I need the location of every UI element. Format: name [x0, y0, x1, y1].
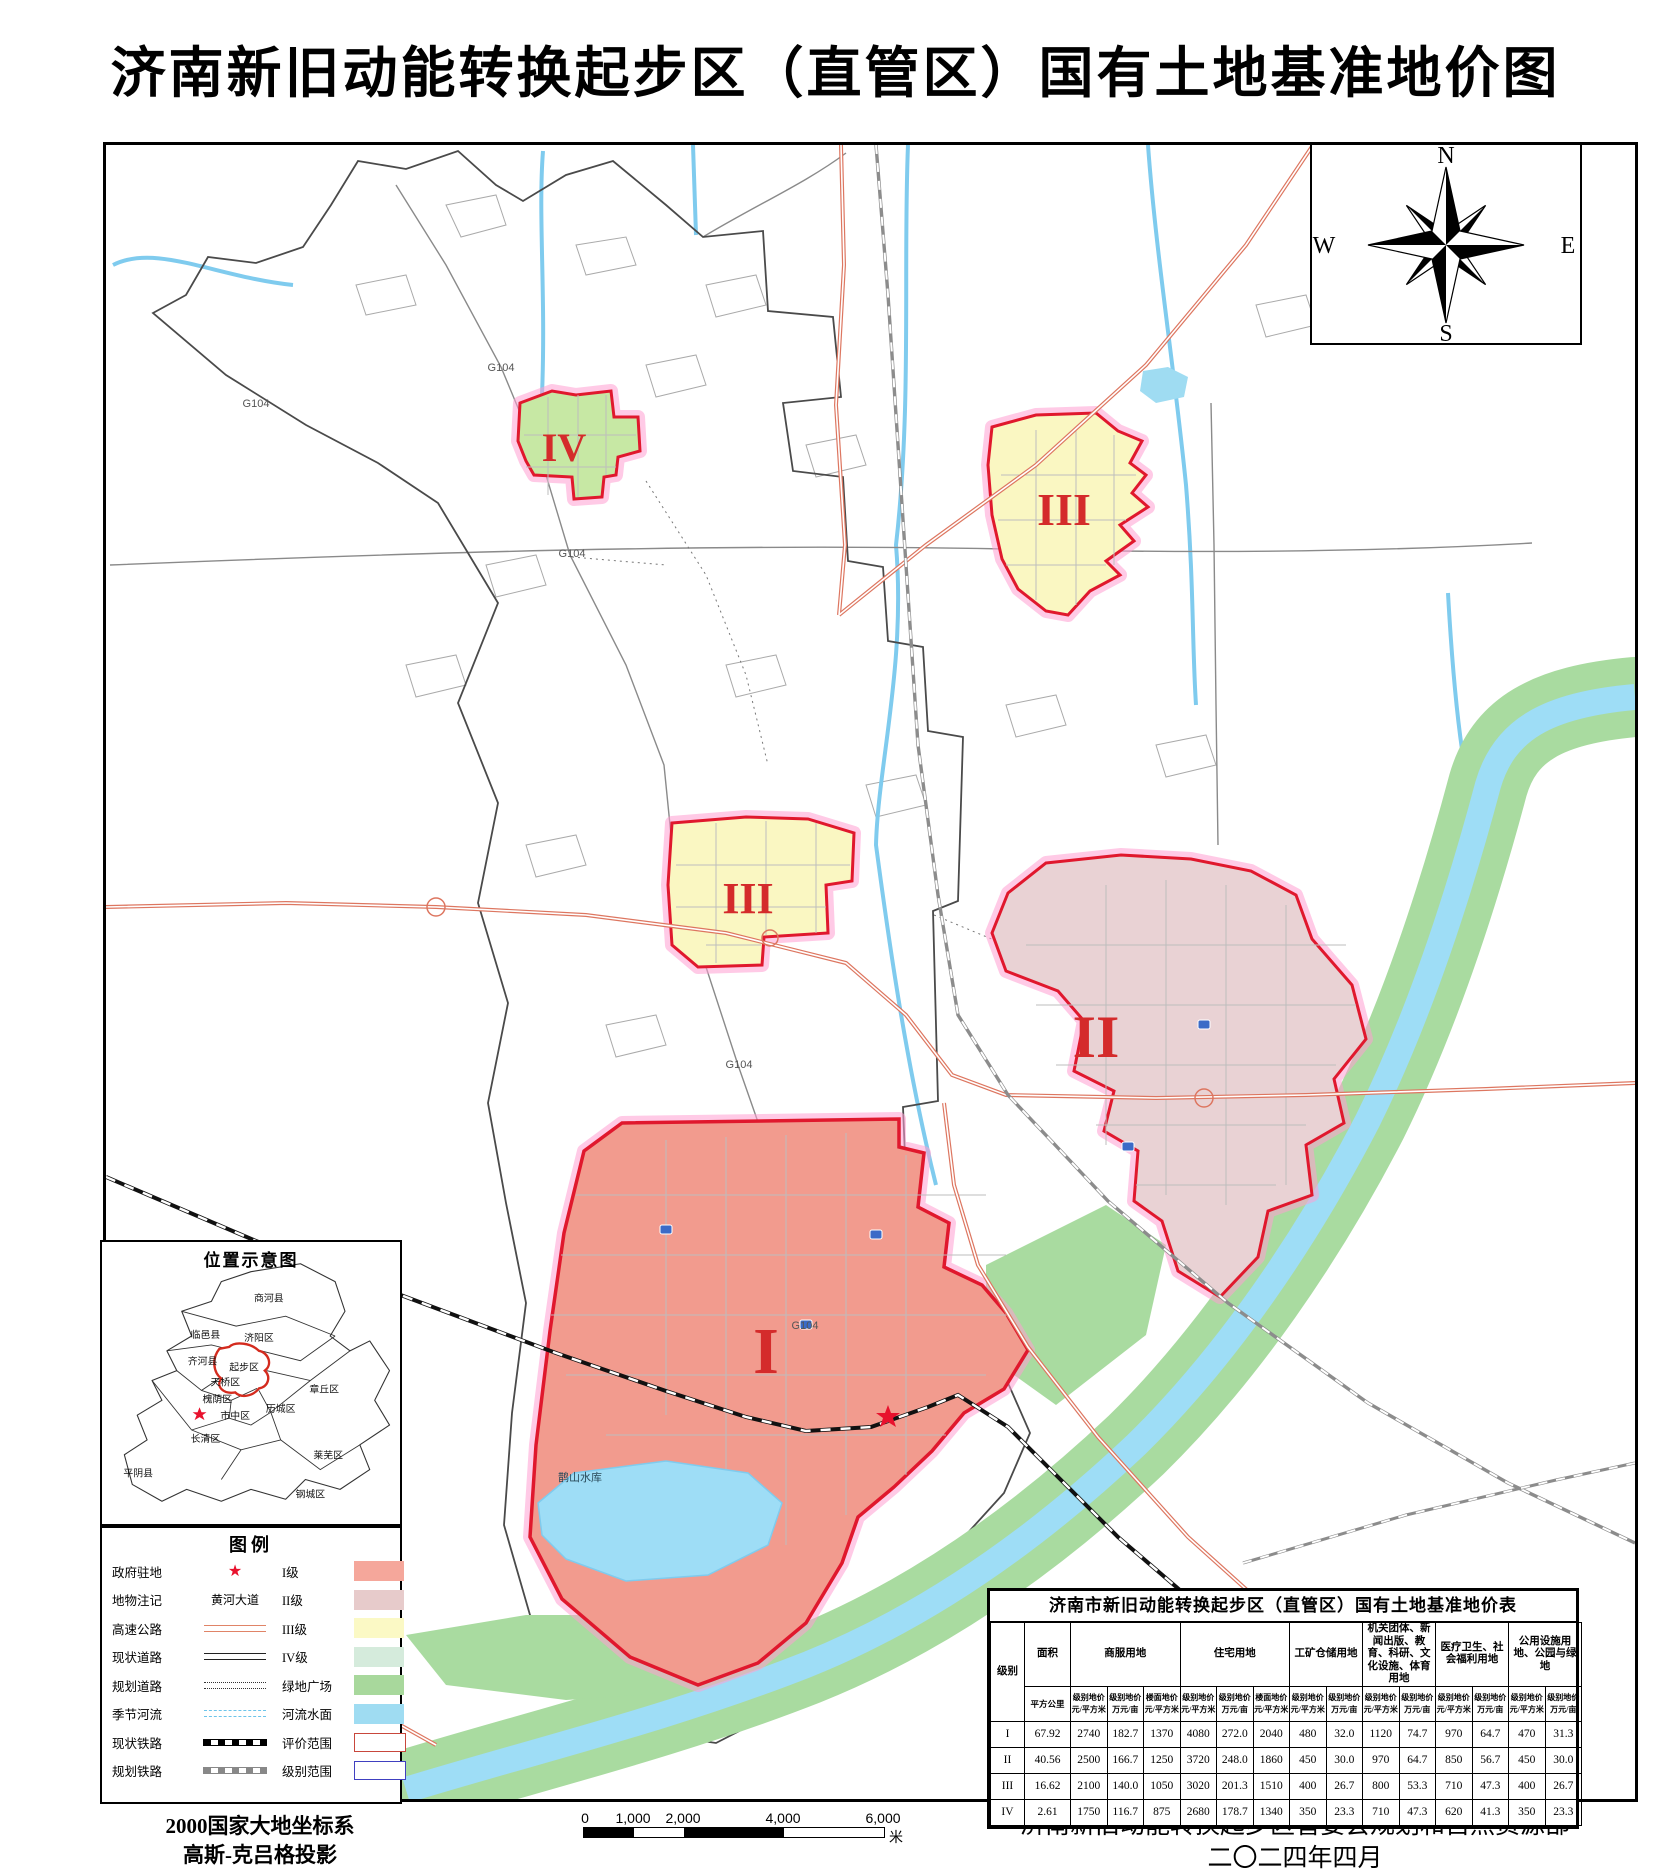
table-cell-grade: II [991, 1747, 1025, 1773]
inset-svg: 商河县临邑县济阳区齐河县起步区天桥区章丘区槐荫区历城区市中区长清区莱芜区平阴县钢… [102, 1242, 400, 1524]
legend-right-label: IV级 [282, 1647, 354, 1666]
legend-right-label: 绿地广场 [282, 1676, 354, 1695]
table-cell: 26.7 [1545, 1773, 1582, 1799]
table-cell: 470 [1509, 1721, 1546, 1747]
table-cell: 23.3 [1545, 1799, 1582, 1825]
legend-row: 季节河流河流水面 [102, 1700, 400, 1729]
inset-district-label: 济阳区 [244, 1331, 274, 1344]
table-cell: 32.0 [1326, 1721, 1363, 1747]
legend-swatch [354, 1647, 404, 1667]
price-table-title: 济南市新旧动能转换起步区（直管区）国有土地基准地价表 [990, 1591, 1576, 1622]
table-header-area: 面积 [1025, 1623, 1071, 1687]
scale-bar-segments [583, 1827, 885, 1838]
table-header-group: 公用设施用地、公园与绿地 [1509, 1623, 1582, 1687]
table-cell: 56.7 [1472, 1747, 1509, 1773]
table-cell: 116.7 [1107, 1799, 1144, 1825]
table-header-group: 住宅用地 [1180, 1623, 1290, 1687]
table-cell: 970 [1363, 1747, 1400, 1773]
table-header-group: 商服用地 [1071, 1623, 1181, 1687]
table-cell: 350 [1290, 1799, 1327, 1825]
legend-row: 现状道路IV级 [102, 1643, 400, 1672]
scale-unit-label: 米 [889, 1827, 903, 1847]
road-label: G104 [488, 362, 515, 374]
table-cell: 64.7 [1472, 1721, 1509, 1747]
table-cell: 970 [1436, 1721, 1473, 1747]
table-cell: 182.7 [1107, 1721, 1144, 1747]
table-cell: 2040 [1253, 1721, 1290, 1747]
legend-left-label: 规划铁路 [112, 1761, 188, 1780]
table-cell-grade: III [991, 1773, 1025, 1799]
legend-row: 规划道路绿地广场 [102, 1671, 400, 1700]
legend-row: 地物注记黄河大道II级 [102, 1586, 400, 1615]
inset-district-label: 长清区 [191, 1432, 221, 1445]
inset-district-label: 天桥区 [210, 1376, 240, 1388]
table-subheader: 平方公里 [1025, 1686, 1071, 1721]
table-cell: 31.3 [1545, 1721, 1582, 1747]
legend-left-label: 现状道路 [112, 1647, 188, 1666]
table-cell: 1050 [1144, 1773, 1181, 1799]
scale-tick-2000: 2,000 [665, 1810, 700, 1826]
table-cell: 30.0 [1326, 1747, 1363, 1773]
zone-label-II: II [1073, 1004, 1120, 1070]
table-row: II40.562500166.712503720248.0186045030.0… [991, 1747, 1582, 1773]
legend-left-label: 季节河流 [112, 1704, 188, 1723]
table-subheader: 级别地价万元/亩 [1545, 1686, 1582, 1721]
legend-row: 规划铁路级别范围 [102, 1757, 400, 1786]
inset-district-label: 章丘区 [309, 1382, 339, 1395]
table-cell: 248.0 [1217, 1747, 1254, 1773]
page-title: 济南新旧动能转换起步区（直管区）国有土地基准地价图 [0, 28, 1671, 108]
table-row: I67.922740182.713704080272.0204048032.01… [991, 1721, 1582, 1747]
table-subheader: 级别地价元/平方米 [1071, 1686, 1108, 1721]
legend-row: 高速公路III级 [102, 1614, 400, 1643]
footer-right-line2: 二〇二四年四月 [980, 1843, 1610, 1876]
table-cell: 2740 [1071, 1721, 1108, 1747]
inset-title: 位置示意图 [102, 1246, 400, 1271]
table-cell: 2.61 [1025, 1799, 1071, 1825]
inset-district-label: 市中区 [220, 1409, 250, 1422]
compass-rose-icon: N S W E [1312, 145, 1580, 343]
table-cell: 4080 [1180, 1721, 1217, 1747]
table-cell: 3020 [1180, 1773, 1217, 1799]
footer-left-line1: 2000国家大地坐标系 [95, 1812, 425, 1841]
legend-swatch [354, 1675, 404, 1695]
table-cell: 74.7 [1399, 1721, 1436, 1747]
inset-district-label: 起步区 [229, 1362, 259, 1374]
road-label: G104 [792, 1320, 819, 1332]
table-cell: 140.0 [1107, 1773, 1144, 1799]
planned-railway-symbol-icon [203, 1767, 267, 1774]
small-lake [1140, 367, 1188, 403]
table-header-grade: 级别 [991, 1623, 1025, 1722]
table-cell: 350 [1509, 1799, 1546, 1825]
scale-bar-labels: 0 1,000 2,000 4,000 6,000 [583, 1810, 913, 1827]
legend-right-label: 河流水面 [282, 1704, 354, 1723]
scale-tick-1000: 1,000 [615, 1810, 650, 1826]
inset-district-label: 钢城区 [296, 1487, 326, 1500]
table-cell: 1860 [1253, 1747, 1290, 1773]
legend-swatch [354, 1561, 404, 1581]
compass-w-label: W [1313, 233, 1336, 259]
legend-left-label: 现状铁路 [112, 1733, 188, 1752]
table-subheader: 级别地价万元/亩 [1326, 1686, 1363, 1721]
table-header-group: 工矿仓储用地 [1290, 1623, 1363, 1687]
road-label: G104 [243, 398, 270, 410]
table-cell: 480 [1290, 1721, 1327, 1747]
inset-district-label: 槐荫区 [203, 1392, 233, 1405]
price-table-panel: 济南市新旧动能转换起步区（直管区）国有土地基准地价表 级别面积商服用地住宅用地工… [987, 1588, 1579, 1829]
table-subheader: 级别地价元/平方米 [1363, 1686, 1400, 1721]
planned-road-symbol-icon [204, 1682, 266, 1689]
legend-left-label: 地物注记 [112, 1590, 188, 1609]
legend-right-label: 评价范围 [282, 1733, 354, 1752]
legend-left-label: 政府驻地 [112, 1562, 188, 1581]
scale-tick-0: 0 [581, 1810, 589, 1826]
highway-symbol-icon [204, 1625, 266, 1632]
legend-box: 图例 政府驻地★I级地物注记黄河大道II级高速公路III级现状道路IV级规划道路… [100, 1526, 402, 1804]
compass-n-label: N [1437, 145, 1454, 169]
table-subheader: 级别地价元/平方米 [1436, 1686, 1473, 1721]
table-cell: 47.3 [1399, 1799, 1436, 1825]
table-cell: 1510 [1253, 1773, 1290, 1799]
legend-row: 政府驻地★I级 [102, 1557, 400, 1586]
legend-swatch [354, 1618, 404, 1638]
legend-rows: 政府驻地★I级地物注记黄河大道II级高速公路III级现状道路IV级规划道路绿地广… [102, 1557, 400, 1785]
table-cell: 64.7 [1399, 1747, 1436, 1773]
annotation-sample-text: 黄河大道 [188, 1591, 282, 1608]
inset-district-label: 齐河县 [188, 1355, 218, 1368]
legend-swatch [354, 1704, 404, 1724]
table-cell-grade: I [991, 1721, 1025, 1747]
table-cell: 800 [1363, 1773, 1400, 1799]
table-subheader: 级别地价元/平方米 [1509, 1686, 1546, 1721]
table-cell: 875 [1144, 1799, 1181, 1825]
footer-left-line2: 高斯-克吕格投影 [95, 1841, 425, 1870]
table-subheader: 级别地价万元/亩 [1472, 1686, 1509, 1721]
table-cell: 166.7 [1107, 1747, 1144, 1773]
road-symbol-icon [204, 1653, 266, 1660]
legend-right-label: III级 [282, 1619, 354, 1638]
road-label: G104 [559, 548, 586, 560]
legend-right-label: II级 [282, 1590, 354, 1609]
table-cell: 1250 [1144, 1747, 1181, 1773]
table-cell: 2100 [1071, 1773, 1108, 1799]
legend-swatch [354, 1733, 406, 1752]
table-subheader: 楼面地价元/平方米 [1144, 1686, 1181, 1721]
seasonal-river-symbol-icon [204, 1710, 266, 1717]
inset-district-label: 历城区 [266, 1403, 296, 1415]
table-cell: 272.0 [1217, 1721, 1254, 1747]
table-row: IV2.611750116.78752680178.7134035023.371… [991, 1799, 1582, 1825]
lake-label: 鹊山水库 [558, 1470, 602, 1484]
compass-box: N S W E [1310, 143, 1582, 345]
zone-label-I: I [753, 1315, 779, 1388]
table-subheader: 级别地价元/平方米 [1180, 1686, 1217, 1721]
location-inset-map: 商河县临邑县济阳区齐河县起步区天桥区章丘区槐荫区历城区市中区长清区莱芜区平阴县钢… [100, 1240, 402, 1526]
table-cell: 178.7 [1217, 1799, 1254, 1825]
inset-district-label: 临邑县 [191, 1328, 221, 1341]
table-cell: 53.3 [1399, 1773, 1436, 1799]
table-cell: 23.3 [1326, 1799, 1363, 1825]
legend-swatch [354, 1590, 404, 1610]
legend-row: 现状铁路评价范围 [102, 1728, 400, 1757]
table-cell: 400 [1509, 1773, 1546, 1799]
legend-left-label: 规划道路 [112, 1676, 188, 1695]
table-cell: 67.92 [1025, 1721, 1071, 1747]
legend-swatch [354, 1761, 406, 1780]
table-header-group: 医疗卫生、社会福利用地 [1436, 1623, 1509, 1687]
table-cell: 26.7 [1326, 1773, 1363, 1799]
legend-left-label: 高速公路 [112, 1619, 188, 1638]
inset-district-label: 商河县 [254, 1291, 284, 1304]
table-subheader: 级别地价万元/亩 [1399, 1686, 1436, 1721]
table-cell: 3720 [1180, 1747, 1217, 1773]
table-cell: 1750 [1071, 1799, 1108, 1825]
footer-coordinate-system: 2000国家大地坐标系 高斯-克吕格投影 [95, 1812, 425, 1871]
inset-district-label: 莱芜区 [313, 1449, 343, 1462]
table-row: III16.622100140.010503020201.3151040026.… [991, 1773, 1582, 1799]
government-seat-star-icon: ★ [188, 1561, 282, 1581]
table-cell: 1120 [1363, 1721, 1400, 1747]
table-cell: 41.3 [1472, 1799, 1509, 1825]
compass-s-label: S [1439, 321, 1452, 343]
table-cell: 16.62 [1025, 1773, 1071, 1799]
table-cell: 450 [1290, 1747, 1327, 1773]
table-cell: 1370 [1144, 1721, 1181, 1747]
scale-tick-6000: 6,000 [865, 1810, 900, 1826]
table-cell: 201.3 [1217, 1773, 1254, 1799]
table-cell: 710 [1363, 1799, 1400, 1825]
legend-right-label: 级别范围 [282, 1761, 354, 1780]
legend-right-label: I级 [282, 1562, 354, 1581]
table-cell: 2680 [1180, 1799, 1217, 1825]
table-cell: 710 [1436, 1773, 1473, 1799]
zone-label-IV: IV [542, 425, 587, 470]
table-subheader: 级别地价万元/亩 [1107, 1686, 1144, 1721]
road-label: G104 [726, 1059, 753, 1071]
zone-label-III: III [1037, 484, 1091, 535]
table-cell: 2500 [1071, 1747, 1108, 1773]
price-table: 级别面积商服用地住宅用地工矿仓储用地机关团体、新闻出版、教育、科研、文化设施、体… [990, 1622, 1582, 1826]
scale-tick-4000: 4,000 [765, 1810, 800, 1826]
table-cell: 1340 [1253, 1799, 1290, 1825]
compass-e-label: E [1561, 233, 1576, 259]
table-cell: 850 [1436, 1747, 1473, 1773]
table-cell: 30.0 [1545, 1747, 1582, 1773]
table-cell: 47.3 [1472, 1773, 1509, 1799]
table-header-group: 机关团体、新闻出版、教育、科研、文化设施、体育用地 [1363, 1623, 1436, 1687]
table-cell-grade: IV [991, 1799, 1025, 1825]
zone-label-III: III [722, 874, 773, 923]
table-subheader: 级别地价元/平方米 [1290, 1686, 1327, 1721]
table-cell: 450 [1509, 1747, 1546, 1773]
inset-district-label: 平阴县 [123, 1468, 153, 1480]
table-cell: 620 [1436, 1799, 1473, 1825]
table-cell: 400 [1290, 1773, 1327, 1799]
table-subheader: 楼面地价元/平方米 [1253, 1686, 1290, 1721]
railway-symbol-icon [203, 1739, 267, 1746]
scale-bar: 0 1,000 2,000 4,000 6,000 米 [583, 1810, 913, 1838]
table-subheader: 级别地价万元/亩 [1217, 1686, 1254, 1721]
legend-title: 图例 [102, 1531, 400, 1557]
table-cell: 40.56 [1025, 1747, 1071, 1773]
